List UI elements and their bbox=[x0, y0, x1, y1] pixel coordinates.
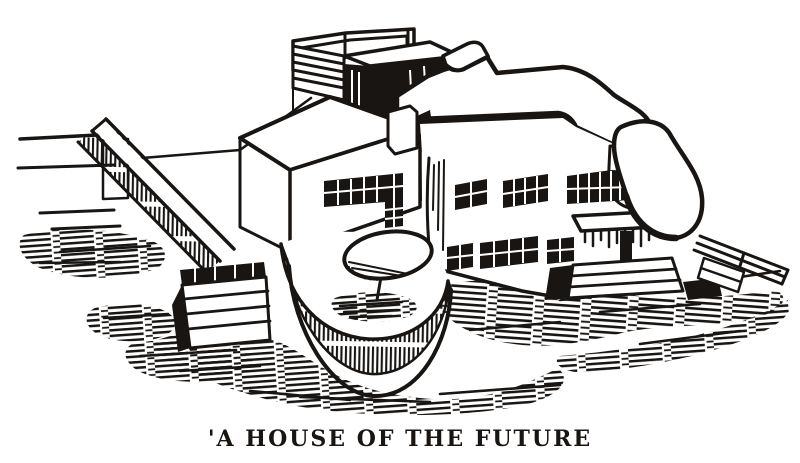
illustration-caption: 'A HOUSE OF THE FUTURE bbox=[0, 423, 800, 455]
house-engraving-illustration bbox=[0, 0, 800, 463]
front-left-steps bbox=[172, 261, 270, 352]
book-page: 'A HOUSE OF THE FUTURE bbox=[0, 0, 800, 463]
roof-chimney bbox=[388, 106, 417, 154]
